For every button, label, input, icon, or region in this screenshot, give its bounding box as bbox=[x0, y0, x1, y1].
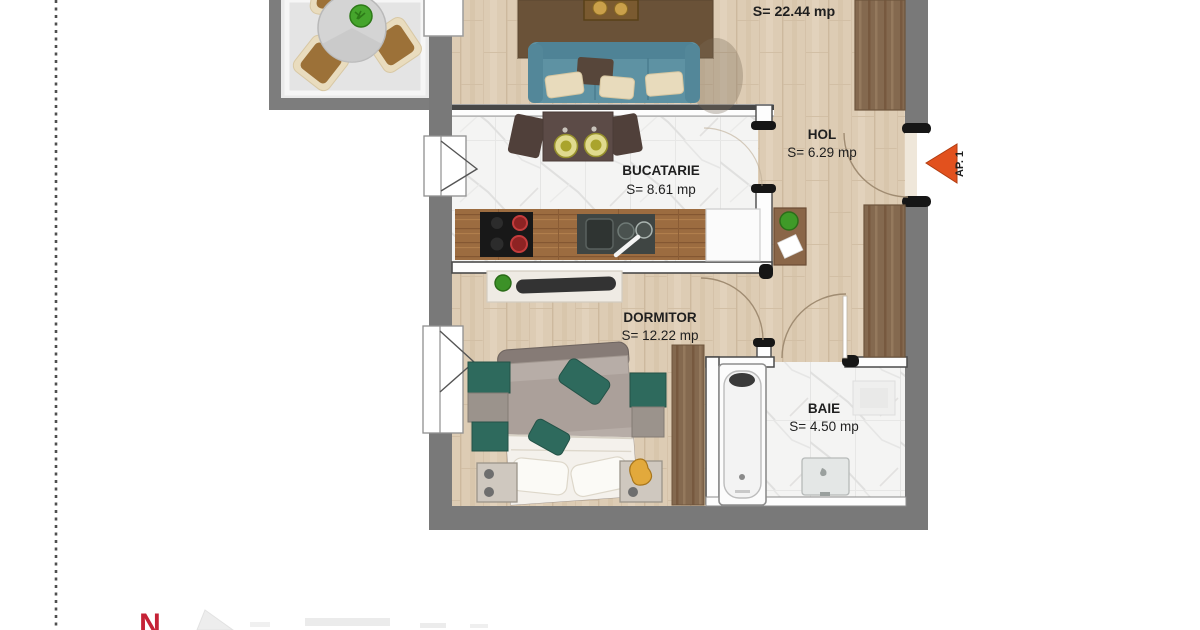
svg-text:BUCATARIE: BUCATARIE bbox=[622, 163, 700, 178]
svg-text:S= 12.22 mp: S= 12.22 mp bbox=[622, 328, 699, 343]
svg-text:N: N bbox=[139, 608, 161, 630]
svg-text:DORMITOR: DORMITOR bbox=[623, 310, 696, 325]
svg-text:AP. 1: AP. 1 bbox=[954, 151, 966, 177]
svg-text:S= 8.61 mp: S= 8.61 mp bbox=[626, 182, 695, 197]
svg-text:S= 4.50 mp: S= 4.50 mp bbox=[789, 419, 858, 434]
svg-text:S= 6.29 mp: S= 6.29 mp bbox=[787, 145, 856, 160]
svg-text:S= 22.44 mp: S= 22.44 mp bbox=[753, 4, 836, 20]
svg-text:BAIE: BAIE bbox=[808, 401, 840, 416]
svg-text:HOL: HOL bbox=[808, 127, 837, 142]
